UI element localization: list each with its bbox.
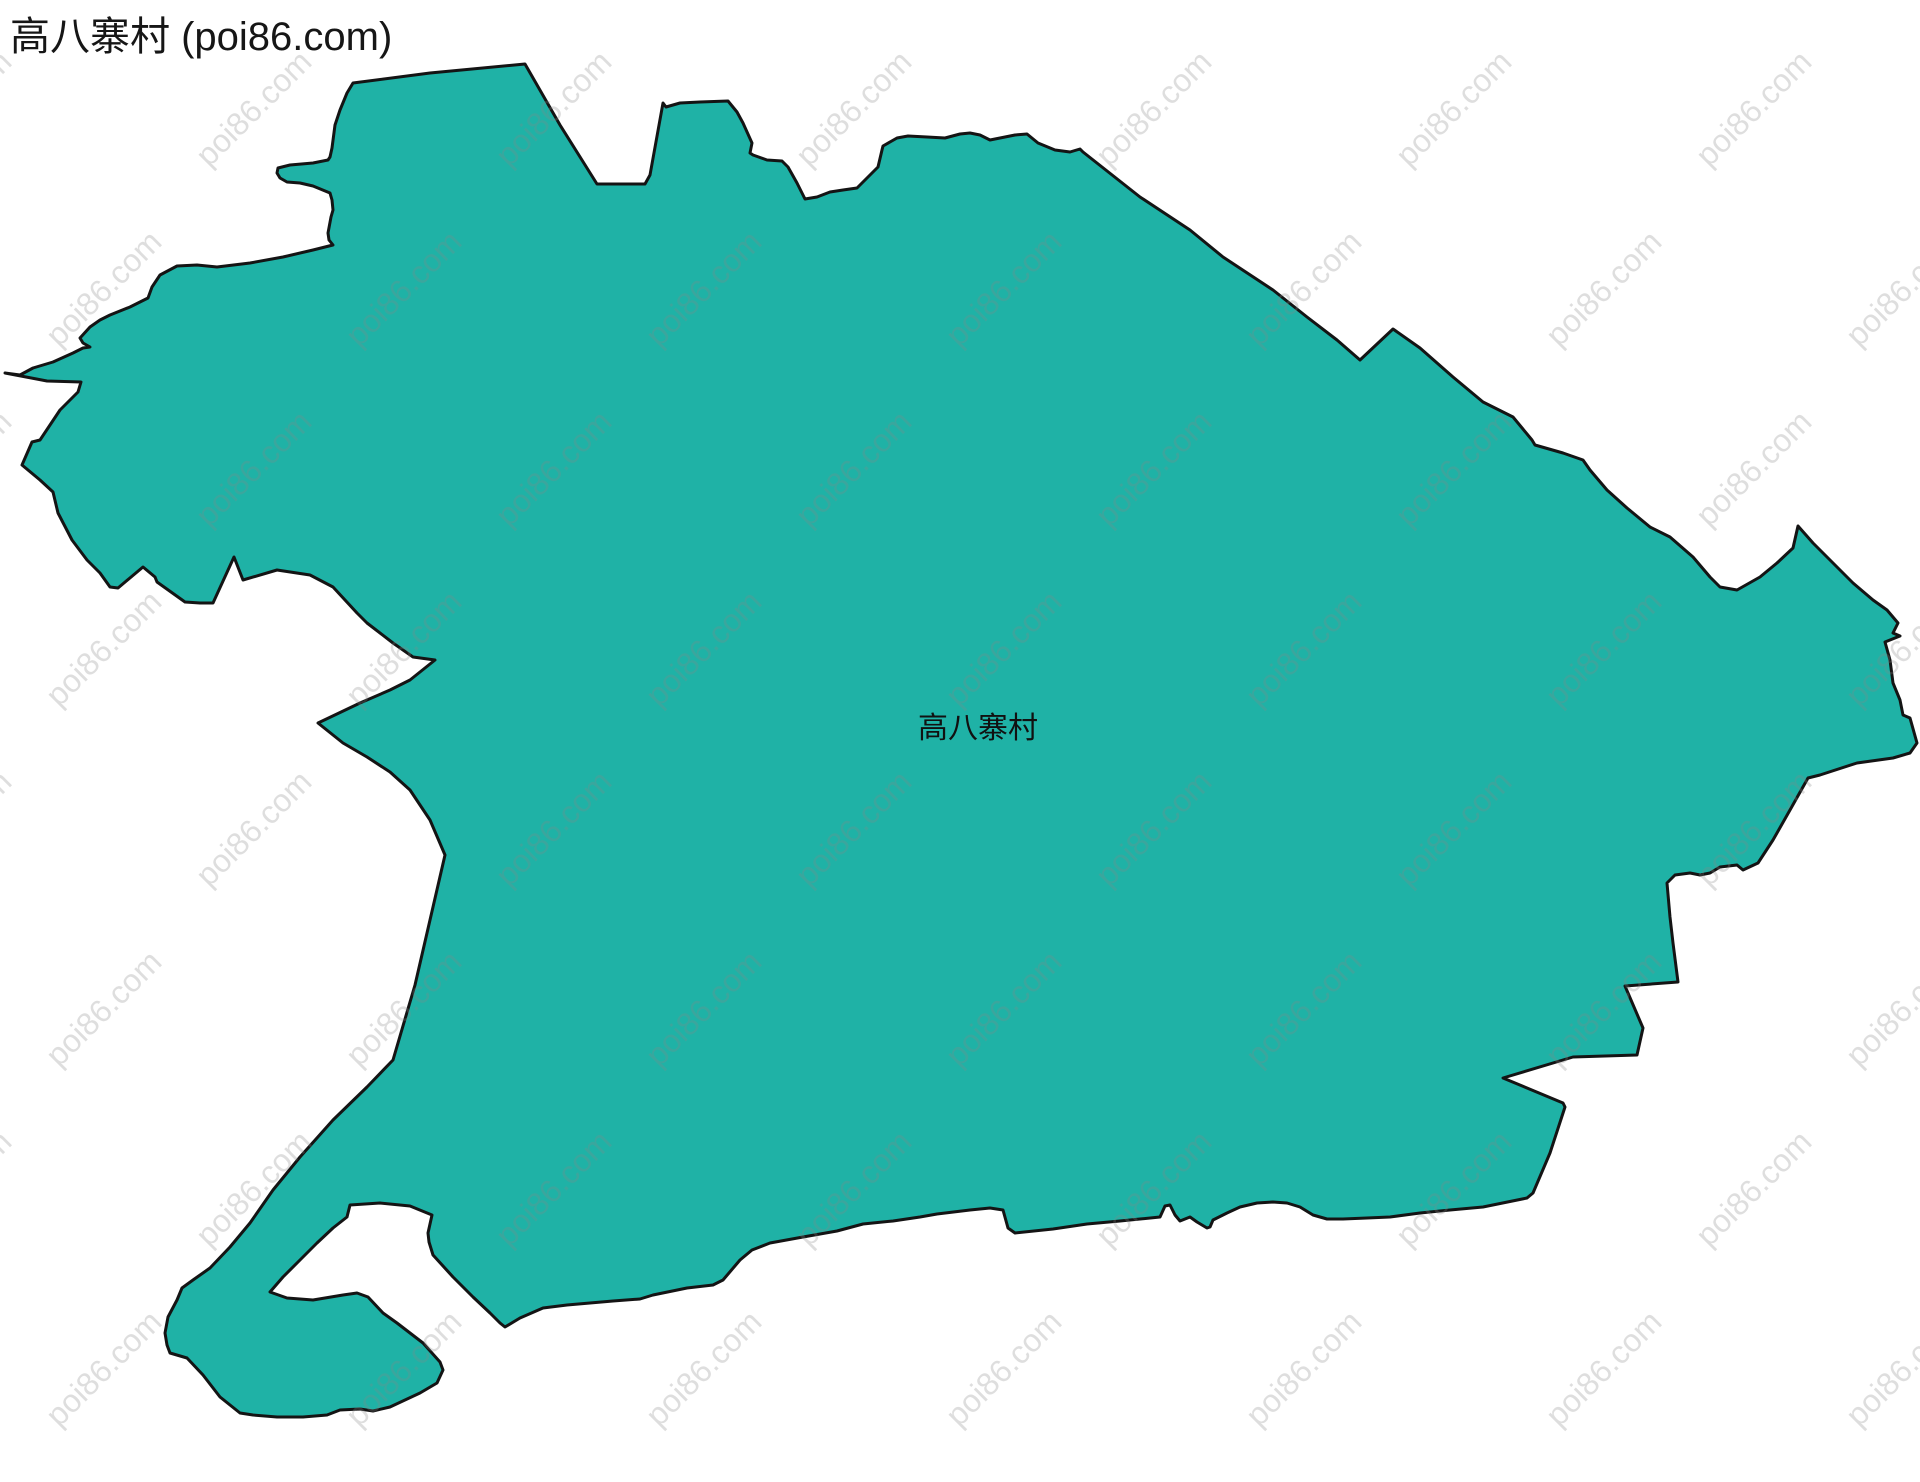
village-boundary-map: 高八寨村: [0, 0, 1920, 1482]
map-page: 高八寨村 poi86.compoi86.compoi86.compoi86.co…: [0, 0, 1920, 1482]
page-title: 高八寨村 (poi86.com): [10, 4, 392, 62]
region-label: 高八寨村: [918, 712, 1038, 745]
